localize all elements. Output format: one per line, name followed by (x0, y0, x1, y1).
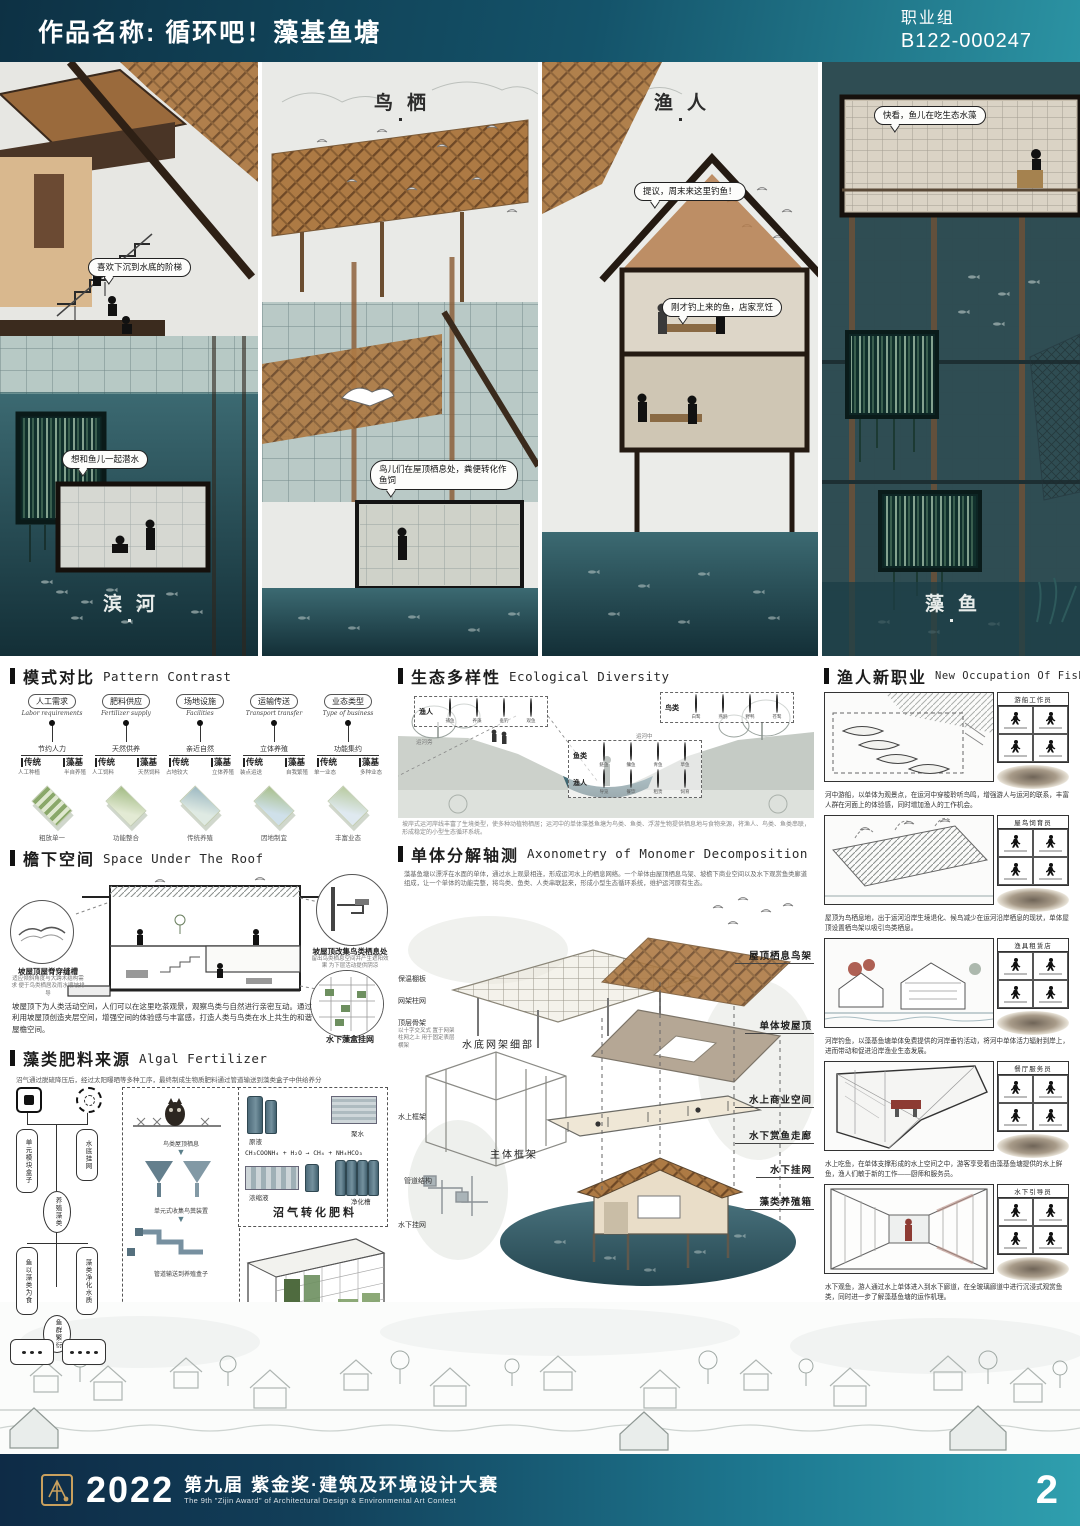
callout-sub: 留出鸟类栖息空间并产生遮阳效果 为下层活动提供阴凉 (310, 956, 390, 970)
pictogram-cell (1033, 980, 1068, 1008)
algal-intro: 沼气通过脱硫降压后，经过太阳曝晒等多种工序，最终制成生物质肥料通过管道输送到藻类… (16, 1074, 386, 1084)
species-photo (657, 769, 659, 788)
pictogram-cell (1033, 952, 1068, 980)
job-photo (997, 1134, 1069, 1158)
pictogram-cell (998, 1198, 1033, 1226)
job-sketch (824, 1184, 994, 1274)
zijin-award-seal-icon (40, 1473, 74, 1507)
pictogram-cell (998, 952, 1033, 980)
egg-box (62, 1339, 106, 1365)
job-photo (997, 888, 1069, 912)
footer-contest: 第九届 紫金奖·建筑及环境设计大赛 The 9th "Zijin Award" … (184, 1475, 499, 1506)
section-bar-icon (398, 846, 403, 862)
module-box-icon (16, 1087, 42, 1113)
species-photo (603, 769, 605, 788)
panel-bird-perch: 鸟栖 鸟儿们在屋顶栖息处，粪便转化作鱼饲 (262, 62, 538, 656)
axon-label: 水上商业空间 (735, 1092, 814, 1108)
pattern-badge: 业态类型 (324, 694, 372, 709)
down-arrow-icon: ▼ (127, 1215, 235, 1224)
section-title-zh: 渔人新职业 (837, 664, 927, 688)
person-icon (1010, 1232, 1022, 1245)
axon-label: 水下挂网 (756, 1162, 814, 1178)
eco-section-drawing: 渔人 捕鱼 养藻 垂钓 观鱼 运河旁 鸟类 白鹭 燕鸥 野鸭 苍鹭 运河中 (398, 692, 814, 818)
section-title-zh: 藻类肥料来源 (23, 1046, 131, 1070)
middle-column: 生态多样性 Ecological Diversity (392, 658, 820, 1302)
iso-diagram (105, 786, 146, 827)
entry-info: 职业组 B122-000247 (901, 9, 1032, 54)
pictogram-cell (1033, 1103, 1068, 1131)
person-icon (1010, 1109, 1022, 1122)
species-photo (449, 698, 451, 717)
pictogram-cell (998, 857, 1033, 885)
axon-label: 藻类养殖箱 (745, 1194, 814, 1210)
chemical-formula: CH₃COONH₄ + H₂O → CH₄ + NH₄HCO₃ (245, 1150, 363, 1157)
section-title-en: Axonometry of Monomer Decomposition (527, 846, 808, 861)
village-panorama (0, 1302, 1080, 1454)
contest-title: 第九届 紫金奖·建筑及环境设计大赛 (184, 1475, 499, 1497)
section-eco-diversity: 生态多样性 Ecological Diversity (398, 664, 814, 838)
section-header: 生态多样性 Ecological Diversity (398, 664, 814, 688)
footer-year: 2022 (86, 1469, 174, 1511)
axon-label: 水底网架细部 (462, 1036, 534, 1051)
pictogram-cell (1033, 857, 1068, 885)
iso-diagram (31, 786, 72, 827)
panel-label-algae-fish: 藻鱼 (911, 589, 991, 622)
person-icon (1045, 986, 1057, 999)
section-title-en: Algal Fertilizer (139, 1051, 267, 1066)
job-photo (997, 765, 1069, 789)
pictogram-cell (998, 734, 1033, 762)
person-icon (1045, 740, 1057, 753)
person-icon (1045, 1109, 1057, 1122)
pattern-columns: 人工需求 Labor requirements 节约人力 传统藻基 人工种植半自… (10, 692, 386, 842)
pattern-badge: 肥料供应 (102, 694, 150, 709)
job-sketch (824, 692, 994, 782)
callout-eave-detail (316, 874, 388, 946)
person-icon (1045, 863, 1057, 876)
job-tag: 游船工作员 (997, 692, 1069, 706)
callout-algae-net (310, 970, 384, 1038)
person-icon (1010, 1081, 1022, 1094)
panel-fisherman: 渔人 提议，周末来这里钓鱼！ 刚才钓上来的鱼，店家烹饪 (542, 62, 818, 656)
species-photo (776, 694, 778, 713)
section-title-en: Space Under The Roof (103, 851, 264, 866)
job-tag: 餐厅服务员 (997, 1061, 1069, 1075)
pattern-badge: 人工需求 (28, 694, 76, 709)
person-icon (1045, 1204, 1057, 1217)
species-photo (684, 769, 686, 788)
flow-box: 水底挂网 (76, 1129, 98, 1181)
job-description: 水上吃鱼，在单体支撑形成的水上空间之中，游客享受着由藻基鱼塘提供的水上鲜鱼，渔人… (825, 1160, 1069, 1179)
axon-label: 单体坡屋顶 (745, 1018, 814, 1034)
job-card-restaurant: 餐厅服务员 水上吃鱼，在单体支撑形成的水上空间之中，游客享受着由藻基鱼塘提供的水… (824, 1061, 1070, 1179)
person-icon (1010, 712, 1022, 725)
bird-perch-illustration (262, 62, 538, 656)
job-icon-grid (997, 1198, 1069, 1255)
pattern-column: 业态类型 Type of business 功能集约 传统藻基 单一业态多种业态… (312, 694, 384, 842)
person-icon (1045, 835, 1057, 848)
person-icon (1010, 863, 1022, 876)
species-photo (503, 698, 505, 717)
axon-drawing: 保温棚板 网架柱网 顶层骨架 以十字交叉式 置于网架柱网之上 用于固定表层横架 … (398, 890, 814, 1308)
callout-ridge-detail (10, 900, 74, 964)
job-photo (997, 1011, 1069, 1035)
person-icon (1010, 835, 1022, 848)
person-icon (1045, 1232, 1057, 1245)
axon-label: 管道结构 (404, 1176, 432, 1186)
pictogram-cell (1033, 829, 1068, 857)
species-photo (476, 698, 478, 717)
roof-paragraph: 坡屋顶下为人类活动空间，人们可以在这里吃茶观景，观察鸟类与自然进行亲密互动。通过… (12, 1001, 312, 1035)
axon-label: 主体框架 (490, 1146, 538, 1161)
panel-riverside: 喜欢下沉到水底的阶梯 想和鱼儿一起潜水 滨河 (0, 62, 258, 656)
species-photo (695, 694, 697, 713)
job-icon-grid (997, 1075, 1069, 1132)
step-label: 管道输送到养殖盒子 (127, 1269, 235, 1278)
pattern-badge: 场地设施 (176, 694, 224, 709)
section-header: 檐下空间 Space Under The Roof (10, 846, 386, 870)
competition-board: 作品名称: 循环吧！藻基鱼塘 职业组 B122-000247 (0, 0, 1080, 1526)
riverside-illustration (0, 62, 258, 656)
right-column: 渔人新职业 New Occupation Of Fisherman (820, 658, 1080, 1302)
pictogram-cell (998, 980, 1033, 1008)
pipe-transport-sketch (127, 1224, 227, 1264)
axon-label: 屋顶栖息鸟架 (735, 948, 814, 964)
left-column: 模式对比 Pattern Contrast 人工需求 Labor require… (0, 658, 392, 1302)
person-icon (1010, 958, 1022, 971)
right-caption: 沼气转化肥料 (273, 1204, 357, 1220)
job-icon-grid (997, 706, 1069, 763)
species-photo (530, 698, 532, 717)
pattern-column: 肥料供应 Fertilizer supply 天然供养 传统藻基 人工饲料天然饲… (90, 694, 162, 842)
section-bar-icon (10, 1050, 15, 1066)
bird-droppings-chain: 鸟类屋顶栖息 ▼ 单元式收集鸟粪装置 ▼ 管道输送到养殖盒子 (122, 1087, 240, 1337)
pictogram-cell (1033, 734, 1068, 762)
stage-label: 聚水 (351, 1128, 364, 1138)
section-header: 渔人新职业 New Occupation Of Fisherman (824, 664, 1070, 688)
job-card-underwater-guide: 水下引导员 水下观鱼，游人通过水上单体进入到水下廊道，在全玻璃廊道中进行沉浸式观… (824, 1184, 1070, 1302)
flow-ellipse: 养殖藻类 (43, 1191, 71, 1233)
section-pattern-contrast: 模式对比 Pattern Contrast 人工需求 Labor require… (10, 664, 386, 842)
iso-diagram (179, 786, 220, 827)
entry-number: B122-000247 (901, 29, 1032, 54)
iso-diagram (327, 786, 368, 827)
owl-on-lattice-sketch (127, 1092, 227, 1134)
person-icon (1010, 1204, 1022, 1217)
panel-label-riverside: 滨河 (89, 589, 169, 622)
pictogram-cell (998, 1075, 1033, 1103)
person-icon (1045, 1081, 1057, 1094)
axon-label: 顶层骨架 (398, 1018, 426, 1028)
speech-bubble: 喜欢下沉到水底的阶梯 (88, 258, 191, 277)
section-title-en: Ecological Diversity (509, 669, 670, 684)
job-card-bird-keeper: 屋鸟饲育员 屋顶为鸟栖息地，出于运河沿岸生境退化、候鸟减少在运河沿岸栖息的现状，… (824, 815, 1070, 933)
section-bar-icon (10, 850, 15, 866)
stage-label: 浓缩液 (249, 1192, 269, 1202)
job-sketch (824, 815, 994, 905)
axon-label: 网架柱网 (398, 996, 426, 1006)
section-title-zh: 檐下空间 (23, 846, 95, 870)
contest-subtitle: The 9th "Zijin Award" of Architectural D… (184, 1496, 499, 1505)
iso-diagram (253, 786, 294, 827)
panel-label-bird-perch: 鸟栖 (360, 88, 440, 121)
section-axonometry: 单体分解轴测 Axonometry of Monomer Decompositi… (398, 842, 814, 1308)
job-tag: 渔具租赁店 (997, 938, 1069, 952)
egg-box (10, 1339, 54, 1365)
eco-caption: 运河旁 (416, 738, 433, 746)
section-space-under-roof: 檐下空间 Space Under The Roof (10, 846, 386, 1042)
job-icon-grid (997, 952, 1069, 1009)
pattern-column: 运输传送 Transport transfer 立体养殖 传统藻基 装点运送自我… (238, 694, 310, 842)
board-footer: 2022 第九届 紫金奖·建筑及环境设计大赛 The 9th "Zijin Aw… (0, 1454, 1080, 1526)
funnel-collector-sketch (127, 1157, 227, 1201)
job-description: 水下观鱼，游人通过水上单体进入到水下廊道，在全玻璃廊道中进行沉浸式观赏鱼类，同时… (825, 1283, 1069, 1302)
flow-box: 鱼以藻类为食 (16, 1247, 38, 1315)
axon-label: 水上框架 (398, 1112, 426, 1122)
eco-group: 鸟类 白鹭 燕鸥 野鸭 苍鹭 (660, 692, 794, 723)
section-title-zh: 模式对比 (23, 664, 95, 688)
work-title: 作品名称: 循环吧！藻基鱼塘 (38, 13, 381, 49)
pictogram-cell (998, 829, 1033, 857)
job-description: 屋顶为鸟栖息地，出于运河沿岸生境退化、候鸟减少在运河沿岸栖息的现状，单体屋顶设置… (825, 914, 1069, 933)
job-description: 河岸钓鱼，以藻基鱼塘单体免费提供的河岸垂钓活动，将河中单体活力辐射到岸上，进而带… (825, 1037, 1069, 1056)
person-icon (1045, 958, 1057, 971)
pattern-column: 场地设施 Facilities 亲近自然 传统藻基 占地较大立体养殖 传统养殖 (164, 694, 236, 842)
down-arrow-icon: ▼ (127, 1148, 235, 1157)
species-photo (657, 742, 659, 761)
eco-caption: 运河中 (636, 732, 653, 740)
eco-group-stacked: 鱼类 鲢鱼 鳙鱼 青鱼 草鱼 渔人 导览 餐饮 租赁 饲育 (568, 740, 702, 798)
pattern-badge: 运输传送 (250, 694, 298, 709)
section-title-en: New Occupation Of Fisherman (935, 670, 1080, 682)
job-icon-grid (997, 829, 1069, 886)
pattern-column: 人工需求 Labor requirements 节约人力 传统藻基 人工种植半自… (16, 694, 88, 842)
panorama-line-art (0, 1302, 1080, 1454)
job-sketch (824, 1061, 994, 1151)
person-icon (1045, 712, 1057, 725)
flow-box: 单元模块盒子 (16, 1129, 38, 1193)
pictogram-cell (998, 706, 1033, 734)
species-photo (749, 694, 751, 713)
axon-label-note: 以十字交叉式 置于网架柱网之上 用于固定表层横架 (398, 1028, 458, 1050)
person-icon (1010, 986, 1022, 999)
job-tag: 水下引导员 (997, 1184, 1069, 1198)
axon-label: 水下赏鱼走廊 (735, 1128, 814, 1144)
species-photo (630, 769, 632, 788)
roof-section-drawing: 坡屋顶屋脊穿缝槽 适应倾斜角度与大跨木结构需求 便于鸟类栖居及雨水顺坡排导 坡屋… (10, 874, 386, 1042)
speech-bubble: 想和鱼儿一起潜水 (62, 450, 148, 469)
job-card-boat-worker: 游船工作员 河中游船，以单体为观景点，在运河中穿梭聆听鸟鸣，增强游人与运河的联系… (824, 692, 1070, 810)
axon-label: 保温棚板 (398, 974, 426, 984)
stage-label: 原液 (249, 1136, 262, 1146)
axon-label: 水下挂网 (398, 1220, 426, 1230)
analysis-area: 模式对比 Pattern Contrast 人工需求 Labor require… (0, 658, 1080, 1302)
pictogram-cell (1033, 1226, 1068, 1254)
job-description: 河中游船，以单体为观景点，在运河中穿梭聆听鸟鸣，增强游人与运河的联系，丰富人群在… (825, 791, 1069, 810)
pictogram-cell (1033, 1075, 1068, 1103)
species-photo (603, 742, 605, 761)
section-title-en: Pattern Contrast (103, 669, 231, 684)
section-header: 单体分解轴测 Axonometry of Monomer Decompositi… (398, 842, 814, 866)
panel-label-fisherman: 渔人 (640, 88, 720, 121)
species-photo (684, 742, 686, 761)
eco-note: 坡岸式运河岸线丰富了生境类型，使多种动植物栖居；运河中的单体藻基鱼塘为鸟类、鱼类… (402, 821, 812, 838)
speech-bubble: 鸟儿们在屋顶栖息处，粪便转化作鱼饲 (370, 460, 518, 490)
pictogram-cell (998, 1103, 1033, 1131)
section-bar-icon (398, 668, 403, 684)
eco-group: 渔人 捕鱼 养藻 垂钓 观鱼 (414, 696, 548, 727)
fisherman-illustration (542, 62, 818, 656)
speech-bubble: 快看，鱼儿在吃生态水藻 (874, 106, 986, 125)
job-card-tackle-shop: 渔具租赁店 河岸钓鱼，以藻基鱼塘单体免费提供的河岸垂钓活动，将河中单体活力辐射到… (824, 938, 1070, 1056)
pictogram-cell (998, 1226, 1033, 1254)
pictogram-cell (1033, 1198, 1068, 1226)
biogas-plant-diagram: 原液 聚水 CH₃COONH₄ + H₂O → CH₄ + NH₄HCO₃ 浓缩… (238, 1087, 388, 1227)
job-photo (997, 1257, 1069, 1281)
section-header: 藻类肥料来源 Algal Fertilizer (10, 1046, 386, 1070)
section-title-zh: 生态多样性 (411, 664, 501, 688)
section-bar-icon (10, 668, 15, 684)
callout-sub: 适应倾斜角度与大跨木结构需求 便于鸟类栖居及雨水顺坡排导 (10, 976, 86, 997)
section-bar-icon (824, 668, 829, 684)
axon-intro: 藻基鱼塘以漂浮在水面的单体，通过水上观景相连，形成运河水上的栖息网络。一个单体由… (404, 870, 812, 888)
person-icon (1010, 740, 1022, 753)
board-header: 作品名称: 循环吧！藻基鱼塘 职业组 B122-000247 (0, 0, 1080, 62)
job-sketch (824, 938, 994, 1028)
section-title-zh: 单体分解轴测 (411, 842, 519, 866)
species-photo (630, 742, 632, 761)
rendering-strip: 喜欢下沉到水底的阶梯 想和鱼儿一起潜水 滨河 (0, 62, 1080, 656)
entry-group: 职业组 (901, 9, 1032, 29)
species-photo (722, 694, 724, 713)
speech-bubble: 刚才钓上来的鱼，店家烹饪 (662, 298, 782, 317)
job-tag: 屋鸟饲育员 (997, 815, 1069, 829)
flow-box: 藻类净化水质 (76, 1247, 98, 1315)
page-number: 2 (1036, 1468, 1058, 1513)
net-node-icon (76, 1087, 102, 1113)
panel-algae-fish: 快看，鱼儿在吃生态水藻 藻鱼 (822, 62, 1080, 656)
speech-bubble: 提议，周末来这里钓鱼！ (634, 182, 746, 201)
pictogram-cell (1033, 706, 1068, 734)
callout-label: 水下藻盒挂网 (310, 1034, 390, 1045)
section-header: 模式对比 Pattern Contrast (10, 664, 386, 688)
algae-fish-illustration (822, 62, 1080, 656)
